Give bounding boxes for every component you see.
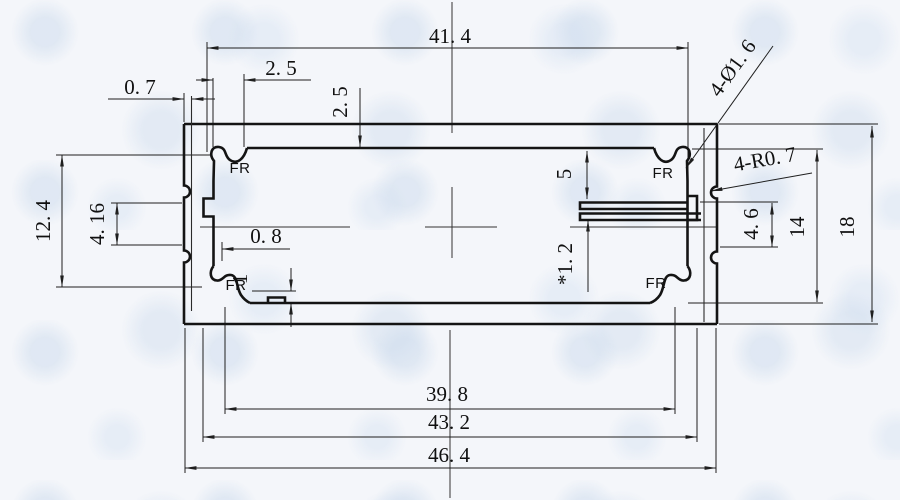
leader-corner-radius <box>711 173 812 191</box>
dim-label-12-4: 12. 4 <box>31 200 55 243</box>
outer-left-wall-with-notches <box>184 124 190 324</box>
dim-label-4-6: 4. 6 <box>739 208 763 240</box>
left-inner-wall <box>204 181 214 266</box>
profile-geometry <box>184 96 717 324</box>
dim-label-0-7: 0. 7 <box>124 75 156 99</box>
dim-label-46-4: 46. 4 <box>428 443 471 467</box>
dim-label-41-4: 41. 4 <box>429 24 472 48</box>
drawing-sheet: 41. 4 2. 5 0. 7 2. 5 12. 4 4. 16 0. 8 1 … <box>0 0 900 500</box>
dim-label-39-8: 39. 8 <box>426 382 468 406</box>
fr-label-top-left: FR <box>230 160 251 177</box>
dim-label-14: 14 <box>785 216 809 238</box>
dim-label-2-5-horizontal: 2. 5 <box>265 56 297 80</box>
dim-label-5: 5 <box>552 169 576 180</box>
fr-label-top-right: FR <box>653 165 674 182</box>
dim-label-0-8: 0. 8 <box>250 224 282 248</box>
dimension-lines <box>56 42 878 473</box>
leader-label-screw-holes: 4-Ø1. 6 <box>704 35 761 101</box>
dim-label-star-1-2: *1. 2 <box>553 243 577 285</box>
right-rail-foot <box>688 196 698 220</box>
leader-label-corner-radius: 4-R0. 7 <box>732 142 798 177</box>
dim-label-18: 18 <box>835 217 859 238</box>
dim-label-4-16: 4. 16 <box>85 203 109 245</box>
dim-label-43-2: 43. 2 <box>428 410 470 434</box>
pcb-rail-upper <box>580 203 688 210</box>
outer-right-wall-with-notches <box>711 124 717 324</box>
pcb-rail-lower <box>580 214 701 221</box>
fr-label-bottom-left: FR <box>226 277 247 294</box>
dim-label-2-5-vertical: 2. 5 <box>328 86 352 118</box>
technical-drawing-canvas: 41. 4 2. 5 0. 7 2. 5 12. 4 4. 16 0. 8 1 … <box>0 0 900 500</box>
fr-label-bottom-right: FR <box>646 275 667 292</box>
